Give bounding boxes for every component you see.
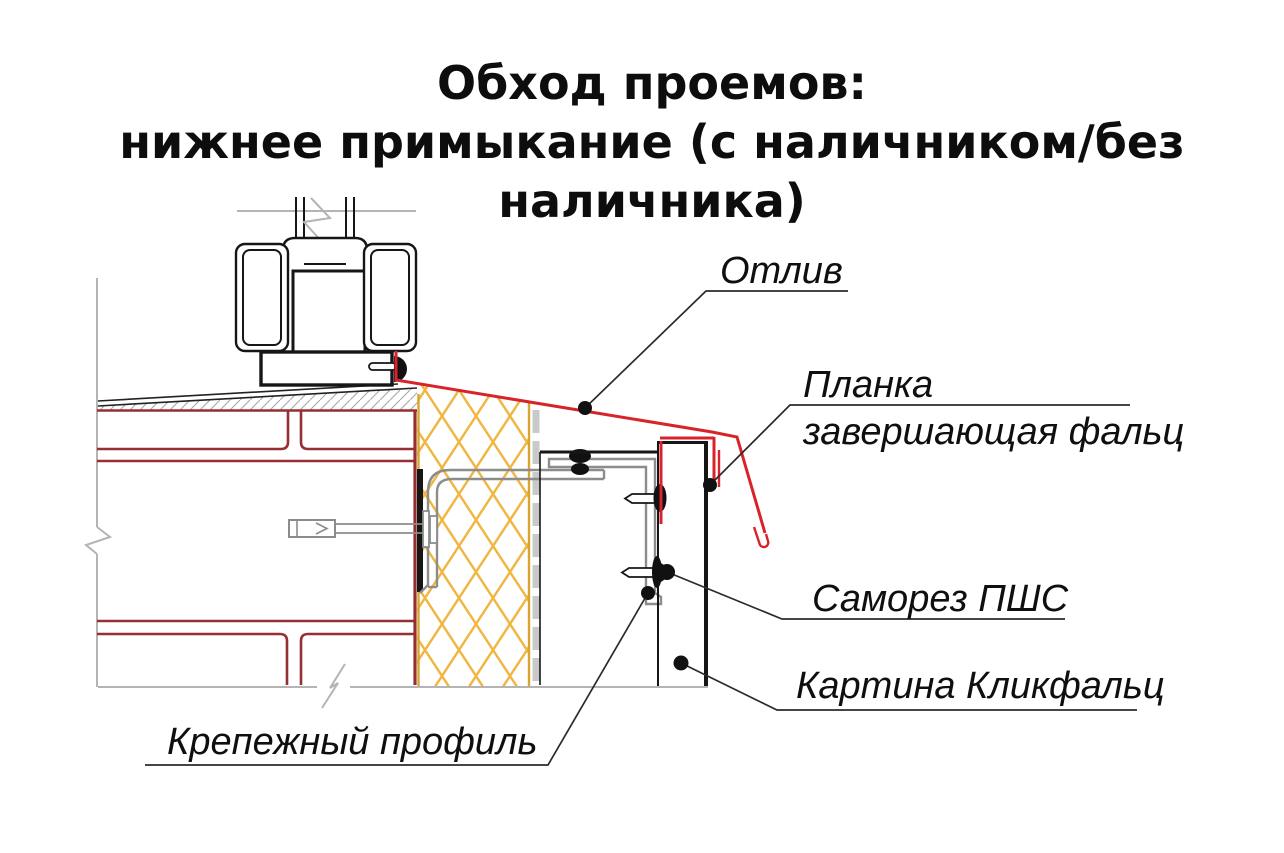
drip-sill-hem: [754, 527, 768, 547]
title-line-2: нижнее примыкание (с наличником/без нали…: [10, 113, 1284, 231]
sill-slope-board: [98, 384, 417, 410]
brick-wall: [97, 410, 417, 685]
title-line-1: Обход проемов:: [10, 54, 1284, 113]
klickfalz-panel: [658, 441, 706, 686]
label-kartina: Картина Кликфальц: [796, 664, 1165, 708]
label-otliv: Отлив: [720, 249, 843, 293]
label-krepezhny: Крепежный профиль: [167, 720, 537, 764]
label-planka-line2: завершающая фальц: [803, 409, 1184, 456]
label-planka-line1: Планка: [803, 362, 1184, 409]
label-planka: Планка завершающая фальц: [803, 362, 1184, 456]
drawing-sheet: Обход проемов: нижнее примыкание (с нали…: [0, 0, 1284, 853]
label-samorez: Саморез ПШС: [812, 577, 1068, 621]
page-title: Обход проемов: нижнее примыкание (с нали…: [10, 54, 1284, 231]
